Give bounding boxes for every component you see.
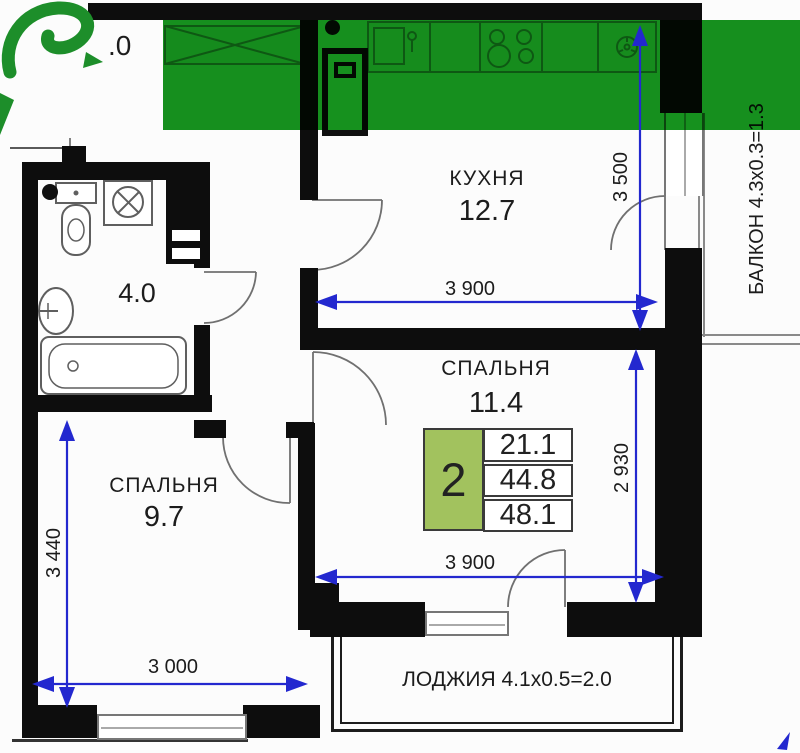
dimension-lines-layer	[0, 0, 800, 753]
developer-logo	[0, 0, 120, 140]
dim-line-3900-bottom	[315, 569, 664, 585]
corner-mark	[777, 732, 790, 750]
dim-line-3500	[632, 25, 648, 331]
dim-line-3900-top	[315, 294, 658, 310]
dim-line-3440	[59, 420, 75, 708]
dim-line-2930	[628, 349, 644, 603]
floor-plan: КУХНЯ 12.7 СПАЛЬНЯ 11.4 СПАЛЬНЯ 9.7 4.0 …	[0, 0, 800, 753]
